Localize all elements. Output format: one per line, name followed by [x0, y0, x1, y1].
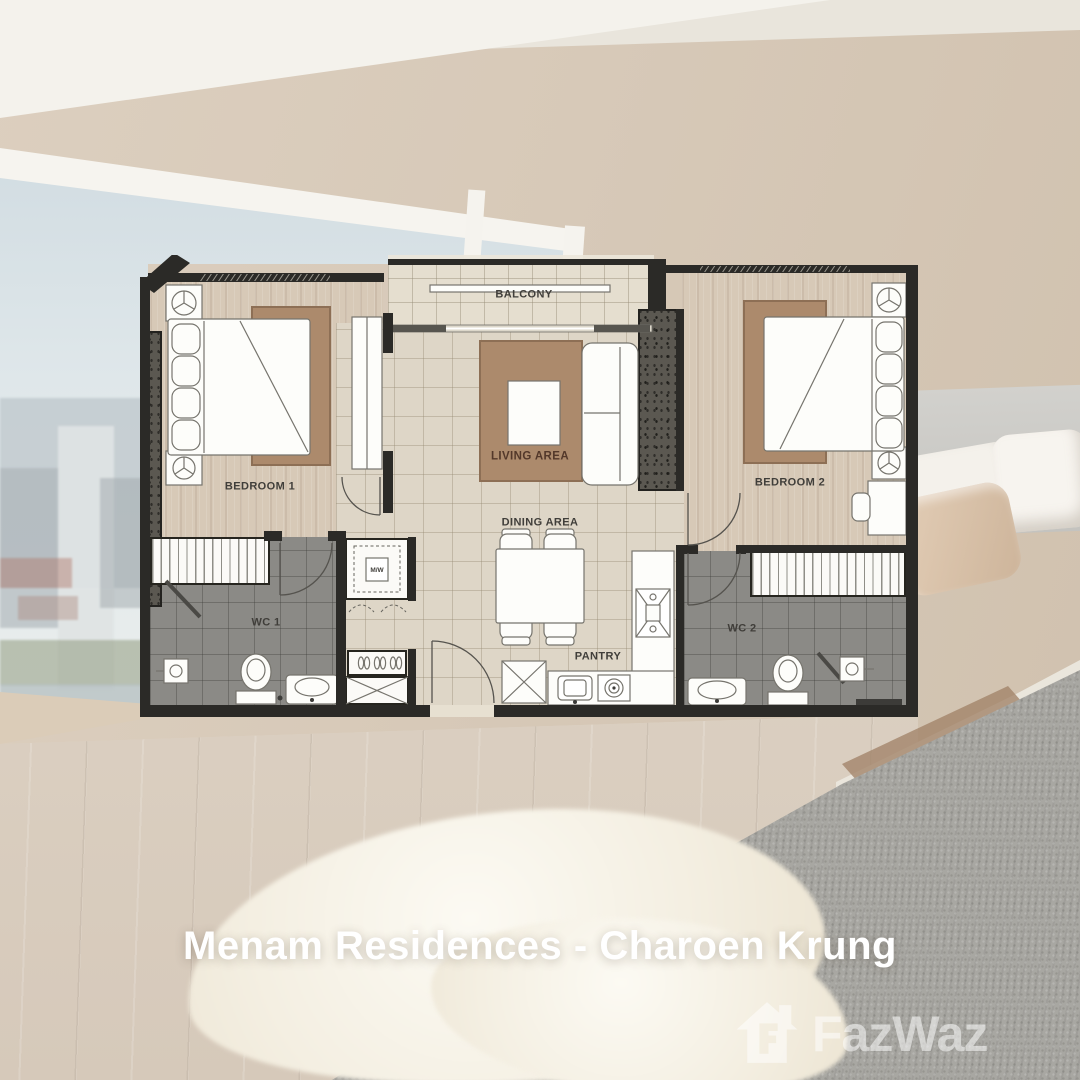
entry-closets	[346, 539, 408, 704]
label-dining: DINING AREA	[502, 518, 579, 529]
scene: BALCONY BEDROOM 1 BEDROOM 2 LIVING AREA …	[0, 0, 1080, 1080]
bedroom1-furniture	[166, 285, 382, 485]
label-living: LIVING AREA	[491, 451, 569, 463]
wc1-fixtures	[156, 581, 338, 704]
city-view	[0, 378, 148, 710]
bedroom2-furniture	[744, 283, 906, 535]
label-bedroom1: BEDROOM 1	[225, 482, 295, 493]
label-pantry: PANTRY	[575, 652, 621, 663]
balcony-sliding-door	[388, 325, 652, 332]
floorplan: BALCONY BEDROOM 1 BEDROOM 2 LIVING AREA …	[140, 255, 918, 717]
house-logo-icon	[728, 996, 806, 1072]
watermark: FazWaz	[728, 996, 988, 1072]
city-roofs	[0, 558, 72, 588]
label-wc1: WC 1	[251, 618, 280, 629]
label-bedroom2: BEDROOM 2	[755, 478, 825, 489]
label-balcony: BALCONY	[495, 290, 552, 301]
label-microwave: M/W	[370, 568, 383, 575]
listing-title: Menam Residences - Charoen Krung	[0, 924, 1080, 969]
watermark-brand: FazWaz	[812, 1005, 988, 1063]
city-roofs	[18, 596, 78, 620]
wc2-fixtures	[688, 653, 902, 706]
label-wc2: WC 2	[727, 624, 756, 635]
city-greenery	[0, 640, 148, 686]
dining-furniture	[496, 529, 584, 645]
living-furniture	[480, 341, 638, 485]
